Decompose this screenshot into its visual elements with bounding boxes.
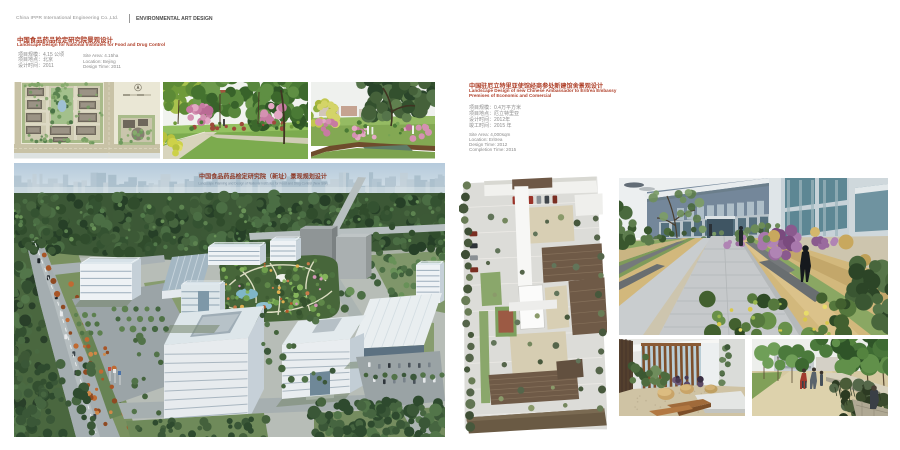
svg-text:中国食品药品检定研究院（新址）景观规划设计: 中国食品药品检定研究院（新址）景观规划设计 [199,173,327,181]
svg-text:Landscape Planning and Design: Landscape Planning and Design of Nationa… [198,182,327,186]
